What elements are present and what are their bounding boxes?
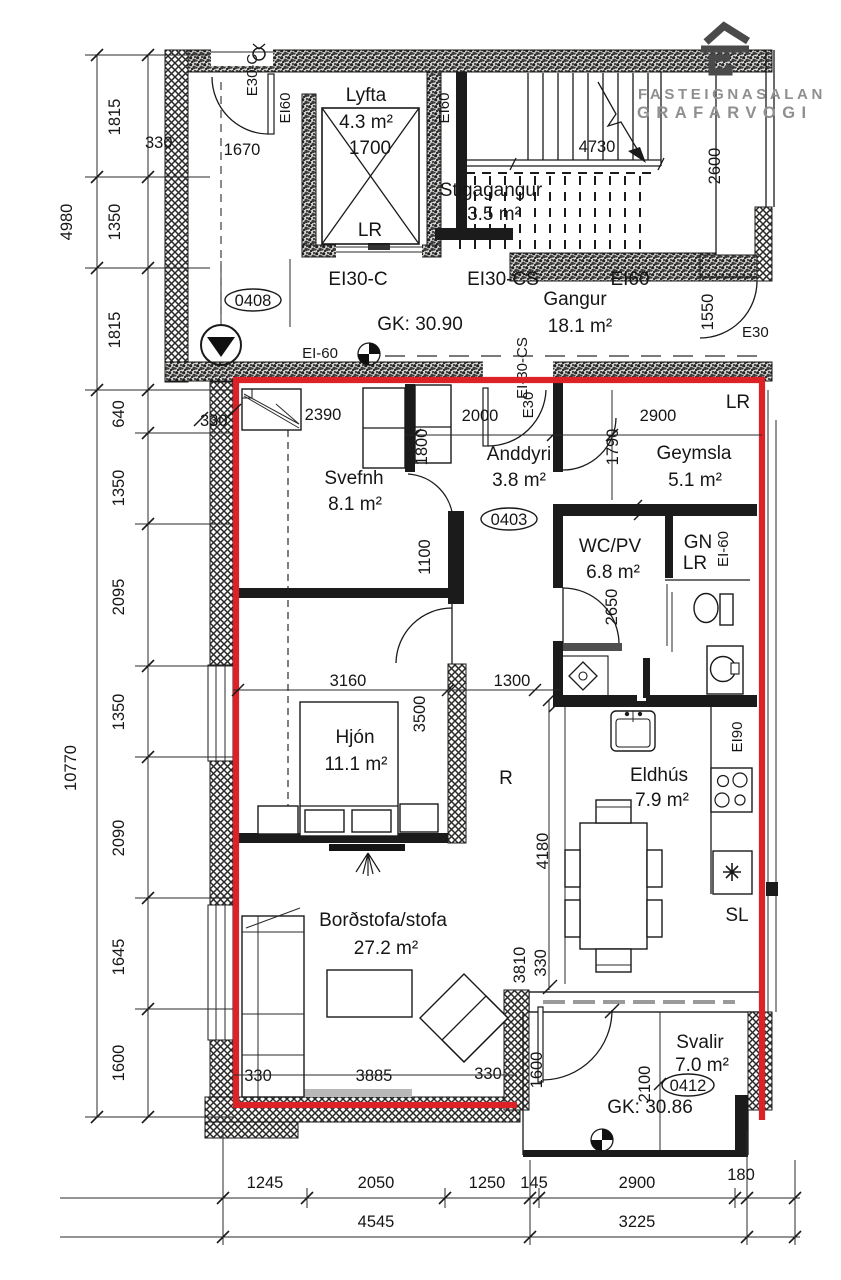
svg-text:2000: 2000: [462, 407, 499, 425]
svg-text:1100: 1100: [416, 539, 434, 574]
svg-text:GN: GN: [684, 532, 713, 553]
svg-text:0412: 0412: [670, 1077, 707, 1095]
svg-text:Geymsla: Geymsla: [657, 443, 732, 464]
svg-text:330: 330: [200, 412, 228, 430]
svg-text:EI-30-CS: EI-30-CS: [514, 337, 531, 399]
svg-text:Svefnh: Svefnh: [324, 468, 383, 489]
svg-text:Hjón: Hjón: [335, 727, 374, 748]
svg-text:LR: LR: [726, 392, 750, 413]
svg-text:330: 330: [474, 1065, 502, 1083]
svg-text:330: 330: [532, 949, 550, 977]
svg-text:3885: 3885: [356, 1067, 393, 1085]
svg-text:4545: 4545: [358, 1213, 395, 1231]
svg-text:2650: 2650: [603, 589, 621, 626]
svg-text:2900: 2900: [640, 407, 677, 425]
svg-text:1815: 1815: [106, 99, 124, 136]
svg-text:4730: 4730: [579, 138, 616, 156]
svg-text:EI-60: EI-60: [715, 531, 732, 567]
svg-text:1245: 1245: [247, 1174, 284, 1192]
svg-text:E30: E30: [742, 324, 769, 341]
svg-text:EI60: EI60: [436, 93, 453, 124]
svg-text:2900: 2900: [619, 1174, 656, 1192]
svg-text:1300: 1300: [494, 672, 531, 690]
svg-text:Borðstofa/stofa: Borðstofa/stofa: [319, 910, 447, 931]
svg-text:FASTEIGNASALAN: FASTEIGNASALAN: [638, 86, 826, 103]
svg-text:330: 330: [244, 1067, 272, 1085]
svg-text:2050: 2050: [358, 1174, 395, 1192]
svg-text:1815: 1815: [106, 312, 124, 349]
svg-text:4.3 m²: 4.3 m²: [339, 112, 393, 133]
svg-text:1600: 1600: [110, 1045, 128, 1082]
svg-text:EI-60: EI-60: [302, 345, 338, 362]
svg-text:3225: 3225: [619, 1213, 656, 1231]
svg-text:EI30-C: EI30-C: [328, 269, 387, 290]
svg-text:1645: 1645: [110, 939, 128, 976]
svg-text:Anddyri: Anddyri: [487, 444, 551, 465]
svg-text:2090: 2090: [110, 820, 128, 857]
svg-text:SL: SL: [725, 905, 748, 926]
svg-text:7.9 m²: 7.9 m²: [635, 790, 689, 811]
svg-text:Eldhús: Eldhús: [630, 765, 688, 786]
svg-text:1600: 1600: [528, 1052, 546, 1089]
svg-text:3500: 3500: [411, 696, 429, 733]
svg-text:180: 180: [727, 1166, 755, 1184]
svg-text:1550: 1550: [699, 294, 717, 331]
svg-text:EI30-CS: EI30-CS: [467, 269, 539, 290]
svg-text:5.1 m²: 5.1 m²: [668, 470, 722, 491]
svg-text:3160: 3160: [330, 672, 367, 690]
svg-text:1350: 1350: [106, 204, 124, 241]
svg-text:3810: 3810: [511, 947, 529, 984]
svg-text:EI60: EI60: [277, 93, 294, 124]
svg-text:2600: 2600: [706, 148, 724, 185]
svg-text:145: 145: [520, 1174, 548, 1192]
svg-text:6.8 m²: 6.8 m²: [586, 562, 640, 583]
svg-text:R: R: [499, 768, 513, 789]
svg-text:Lyfta: Lyfta: [346, 85, 387, 106]
svg-text:3.8 m²: 3.8 m²: [492, 470, 546, 491]
svg-text:GRAFARVOGI: GRAFARVOGI: [637, 104, 813, 122]
svg-text:2100: 2100: [636, 1066, 654, 1103]
svg-text:27.2 m²: 27.2 m²: [354, 938, 418, 959]
svg-text:Gangur: Gangur: [543, 289, 607, 310]
svg-text:2095: 2095: [110, 579, 128, 616]
svg-text:0408: 0408: [235, 292, 272, 310]
svg-text:640: 640: [110, 400, 128, 428]
svg-text:LR: LR: [358, 220, 382, 241]
svg-text:10770: 10770: [62, 745, 80, 791]
svg-text:Stigagangur: Stigagangur: [440, 180, 543, 201]
svg-text:WC/PV: WC/PV: [579, 536, 642, 557]
svg-text:8.1 m²: 8.1 m²: [328, 494, 382, 515]
svg-text:4980: 4980: [58, 204, 76, 241]
svg-text:7.0 m²: 7.0 m²: [675, 1055, 729, 1076]
svg-text:0403: 0403: [491, 511, 528, 529]
svg-text:EI60: EI60: [610, 269, 649, 290]
svg-text:1350: 1350: [110, 470, 128, 507]
svg-text:2390: 2390: [305, 406, 342, 424]
svg-text:18.1 m²: 18.1 m²: [548, 316, 612, 337]
svg-text:LR: LR: [683, 553, 707, 574]
svg-text:330: 330: [145, 134, 173, 152]
svg-text:GK: 30.90: GK: 30.90: [377, 314, 463, 335]
svg-text:EI90: EI90: [729, 722, 746, 753]
svg-text:1700: 1700: [349, 138, 391, 159]
svg-text:E30: E30: [520, 392, 537, 419]
svg-text:11.1 m²: 11.1 m²: [324, 754, 387, 775]
svg-text:1350: 1350: [110, 694, 128, 731]
svg-text:1250: 1250: [469, 1174, 506, 1192]
svg-text:Svalir: Svalir: [676, 1032, 724, 1053]
svg-text:3.5 m²: 3.5 m²: [467, 204, 521, 225]
svg-text:1670: 1670: [224, 141, 261, 159]
